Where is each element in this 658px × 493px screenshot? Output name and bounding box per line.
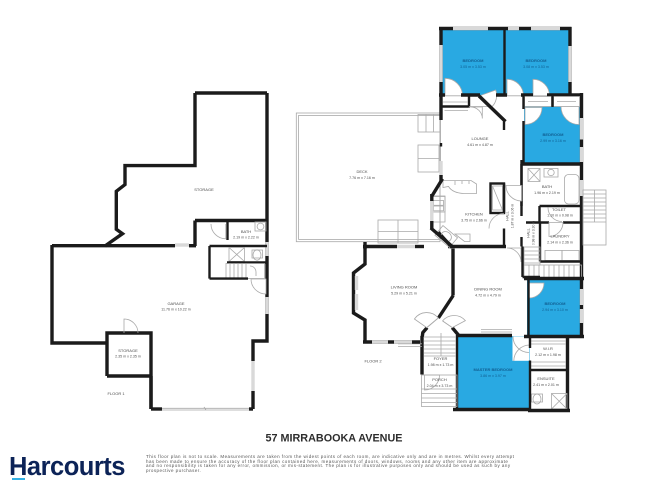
svg-text:W.I.R: W.I.R [543,346,553,351]
svg-text:57 MIRRABOOKA AVENUE: 57 MIRRABOOKA AVENUE [266,433,403,445]
svg-text:2.41 m x 2.01 m: 2.41 m x 2.01 m [533,383,559,387]
svg-text:11.76 m x 10.22 m: 11.76 m x 10.22 m [161,308,191,312]
svg-text:LIVING ROOM: LIVING ROOM [391,285,418,290]
svg-text:BEDROOM: BEDROOM [463,58,485,63]
svg-text:2.14 m x 2.36 m: 2.14 m x 2.36 m [547,241,573,245]
svg-text:3.75 m x 2.66 m: 3.75 m x 2.66 m [461,219,487,223]
svg-text:BEDROOM: BEDROOM [545,301,567,306]
svg-text:TOILET: TOILET [552,207,566,212]
svg-text:7.76 m x 7.16 m: 7.76 m x 7.16 m [349,176,375,180]
svg-text:FLOOR 1: FLOOR 1 [107,391,125,396]
svg-text:LAUNDRY: LAUNDRY [550,234,569,239]
svg-text:2.04 m x 3.73 m: 2.04 m x 3.73 m [427,384,453,388]
svg-text:0.98 m x 3.30 m: 0.98 m x 3.30 m [532,221,536,245]
svg-text:BEDROOM: BEDROOM [543,132,565,137]
svg-text:1.10 m x 0.98 m: 1.10 m x 0.98 m [547,214,573,218]
svg-text:DECK: DECK [356,169,367,174]
svg-text:BEDROOM: BEDROOM [526,58,548,63]
svg-text:2.35 m x 2.35 m: 2.35 m x 2.35 m [115,355,141,359]
svg-text:PORCH: PORCH [432,377,447,382]
svg-text:FLOOR 2: FLOOR 2 [364,359,382,364]
svg-text:MASTER BEDROOM: MASTER BEDROOM [474,367,514,372]
svg-text:3.86 m x 3.97 m: 3.86 m x 3.97 m [480,374,506,378]
svg-text:2.12 m x 1.98 m: 2.12 m x 1.98 m [535,353,561,357]
svg-text:LOUNGE: LOUNGE [472,136,489,141]
svg-text:5.29 m x 5.21 m: 5.29 m x 5.21 m [391,292,417,296]
svg-text:4.72 m x 4.79 m: 4.72 m x 4.79 m [475,294,501,298]
svg-text:1.87 m x 3.06 m: 1.87 m x 3.06 m [511,204,515,228]
svg-text:HALL: HALL [506,211,510,221]
svg-text:2.94 m x 3.10 m: 2.94 m x 3.10 m [542,308,568,312]
svg-text:2.99 m x 3.16 m: 2.99 m x 3.16 m [540,139,566,143]
svg-text:3.08 m x 3.53 m: 3.08 m x 3.53 m [523,65,549,69]
svg-text:1.98 m x 1.73 m: 1.98 m x 1.73 m [428,363,454,367]
svg-text:1.96 m x 2.19 m: 1.96 m x 2.19 m [534,191,560,195]
svg-text:STORAGE: STORAGE [194,187,214,192]
svg-text:KITCHEN: KITCHEN [465,212,483,217]
svg-text:3.05 m x 3.53 m: 3.05 m x 3.53 m [460,65,486,69]
svg-text:BATH: BATH [241,229,251,234]
svg-text:2.19 m x 2.22 m: 2.19 m x 2.22 m [233,236,259,240]
svg-text:STORAGE: STORAGE [118,348,138,353]
svg-text:HALL: HALL [527,228,531,238]
svg-text:ENSUITE: ENSUITE [537,376,555,381]
svg-text:DINING ROOM: DINING ROOM [474,287,502,292]
svg-text:4.61 m x 4.87 m: 4.61 m x 4.87 m [467,143,493,147]
svg-text:BATH: BATH [542,184,552,189]
svg-text:GARAGE: GARAGE [167,301,184,306]
svg-text:FOYER: FOYER [434,356,448,361]
